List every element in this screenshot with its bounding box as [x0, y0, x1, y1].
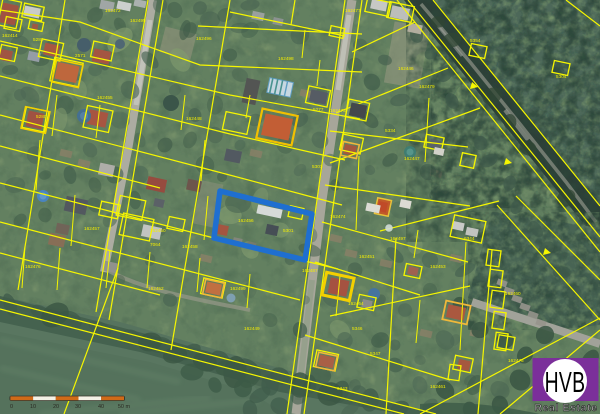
svg-text:162495: 162495	[130, 18, 146, 23]
svg-text:162477: 162477	[345, 8, 361, 13]
svg-text:162458: 162458	[182, 244, 198, 249]
svg-text:162448: 162448	[186, 116, 202, 121]
svg-text:162476: 162476	[25, 264, 41, 269]
svg-text:162473: 162473	[330, 108, 346, 113]
svg-text:40: 40	[98, 404, 104, 410]
svg-text:162497: 162497	[390, 236, 406, 241]
svg-text:162498: 162498	[278, 56, 294, 61]
svg-text:0: 0	[10, 404, 13, 410]
svg-text:7064: 7064	[150, 242, 161, 247]
svg-text:162479: 162479	[419, 84, 435, 89]
svg-text:5280: 5280	[36, 114, 47, 119]
svg-text:162455: 162455	[97, 95, 113, 100]
svg-text:162452: 162452	[148, 286, 164, 291]
svg-text:162460: 162460	[505, 291, 521, 296]
svg-text:5277: 5277	[313, 107, 324, 112]
svg-text:162447: 162447	[404, 156, 420, 161]
svg-text:5304: 5304	[556, 74, 567, 79]
svg-text:5334: 5334	[385, 128, 396, 133]
svg-text:10: 10	[30, 404, 36, 410]
svg-text:162474: 162474	[330, 214, 346, 219]
svg-text:5281: 5281	[33, 37, 44, 42]
svg-text:162449: 162449	[244, 326, 260, 331]
svg-text:2571: 2571	[75, 53, 86, 58]
svg-text:162475: 162475	[508, 358, 524, 363]
svg-text:Real Estate: Real Estate	[534, 402, 597, 414]
svg-text:HVB: HVB	[545, 367, 586, 399]
svg-text:50 m: 50 m	[118, 404, 131, 410]
svg-text:5347: 5347	[370, 351, 381, 356]
svg-text:162414: 162414	[2, 33, 18, 38]
svg-text:6343: 6343	[337, 386, 348, 391]
svg-text:162446: 162446	[398, 66, 414, 71]
svg-text:5346: 5346	[352, 326, 363, 331]
svg-text:5303: 5303	[312, 164, 323, 169]
svg-text:162461: 162461	[430, 384, 446, 389]
svg-text:20: 20	[53, 404, 59, 410]
svg-text:162456: 162456	[238, 218, 254, 223]
svg-text:30: 30	[75, 404, 81, 410]
svg-text:5354: 5354	[470, 38, 481, 43]
svg-text:162457: 162457	[84, 226, 100, 231]
svg-text:162464: 162464	[348, 301, 364, 306]
svg-text:162487: 162487	[302, 268, 318, 273]
svg-text:162453: 162453	[430, 264, 446, 269]
svg-text:162496: 162496	[196, 36, 212, 41]
svg-text:162450: 162450	[150, 228, 166, 233]
svg-text:162499: 162499	[230, 286, 246, 291]
svg-text:6344: 6344	[464, 236, 475, 241]
svg-text:162451: 162451	[359, 254, 375, 259]
svg-text:162472: 162472	[105, 8, 121, 13]
svg-text:5301: 5301	[283, 228, 294, 233]
